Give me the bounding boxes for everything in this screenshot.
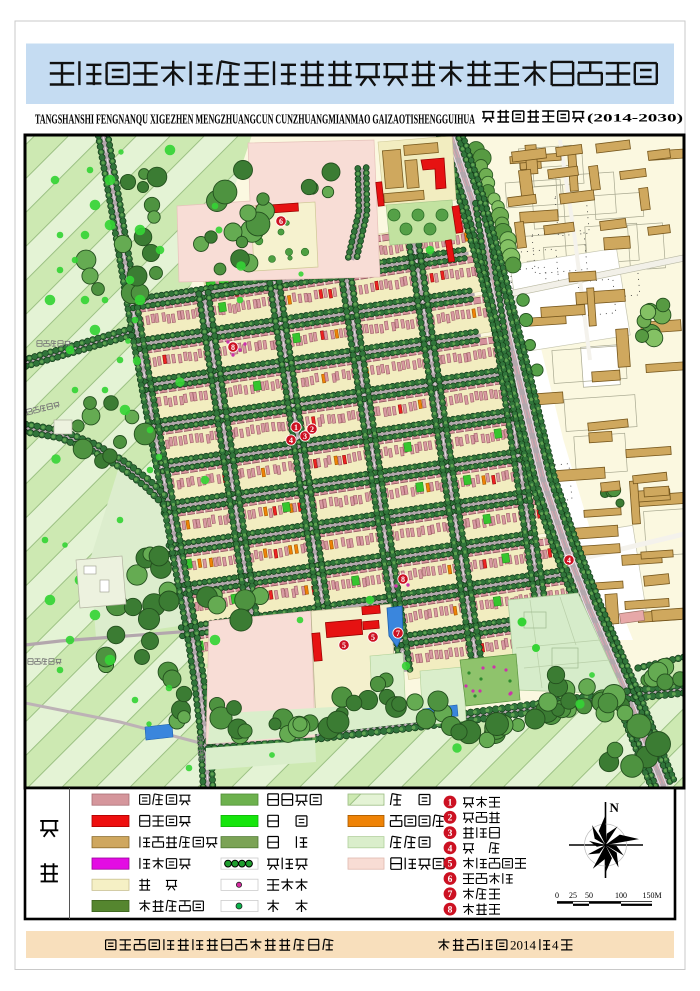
svg-text:7: 7 bbox=[396, 629, 400, 638]
svg-text:0: 0 bbox=[555, 891, 559, 900]
svg-text:TANGSHANSHI FENGNANQU XIGEZHEN: TANGSHANSHI FENGNANQU XIGEZHEN MENGZHUAN… bbox=[35, 112, 475, 127]
svg-text:4: 4 bbox=[289, 436, 293, 445]
svg-text:2014: 2014 bbox=[510, 938, 537, 953]
svg-text:5: 5 bbox=[371, 633, 375, 642]
svg-text:3: 3 bbox=[448, 829, 453, 839]
svg-text:(2014-2030): (2014-2030) bbox=[587, 113, 683, 125]
svg-text:8: 8 bbox=[401, 575, 405, 584]
svg-text:6: 6 bbox=[448, 875, 453, 885]
svg-text:8: 8 bbox=[231, 343, 235, 352]
svg-text:1: 1 bbox=[448, 798, 453, 808]
svg-text:5: 5 bbox=[342, 641, 346, 650]
svg-text:5: 5 bbox=[448, 860, 453, 870]
svg-text:150M: 150M bbox=[642, 891, 661, 900]
svg-text:2: 2 bbox=[448, 814, 453, 824]
svg-text:4: 4 bbox=[552, 938, 559, 953]
svg-text:100: 100 bbox=[615, 891, 627, 900]
svg-text:3: 3 bbox=[303, 432, 307, 441]
svg-text:N: N bbox=[610, 800, 620, 815]
svg-text:50: 50 bbox=[585, 891, 593, 900]
svg-text:4: 4 bbox=[567, 556, 571, 565]
svg-text:7: 7 bbox=[448, 890, 453, 900]
svg-text:25: 25 bbox=[569, 891, 577, 900]
svg-text:4: 4 bbox=[448, 844, 453, 854]
svg-text:2: 2 bbox=[310, 425, 314, 434]
svg-text:1: 1 bbox=[294, 423, 298, 432]
svg-text:8: 8 bbox=[448, 906, 453, 916]
svg-text:6: 6 bbox=[279, 217, 283, 226]
